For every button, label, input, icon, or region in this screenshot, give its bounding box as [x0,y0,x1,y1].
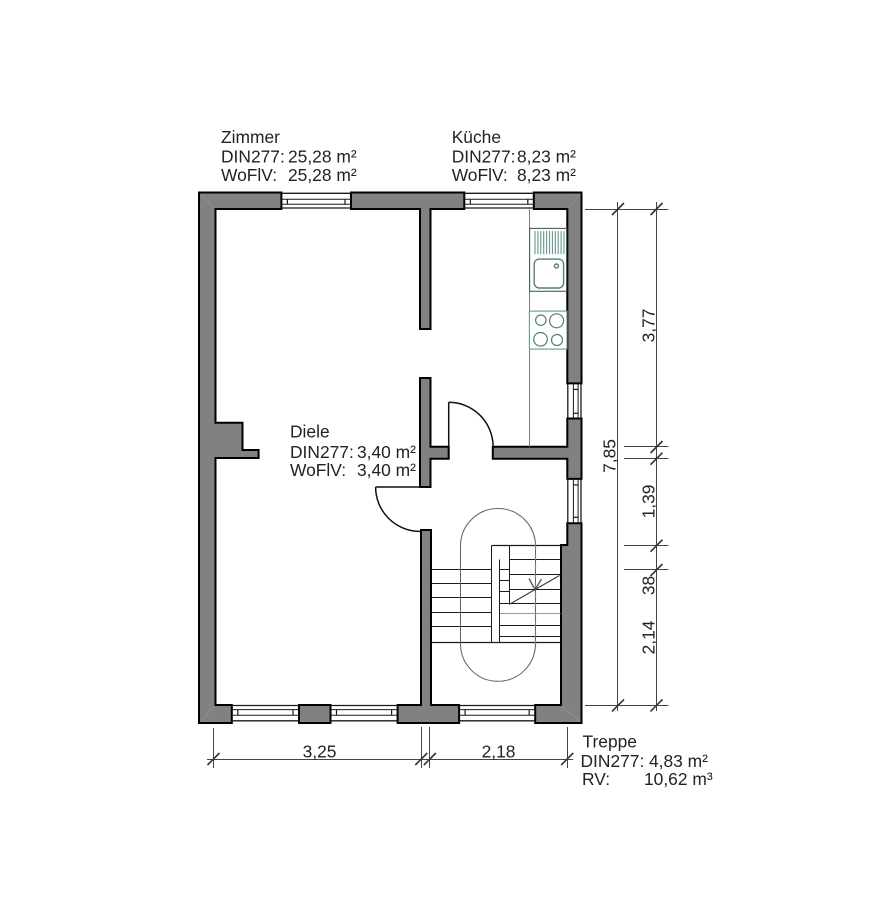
svg-text:WoFlV:: WoFlV: [452,165,508,185]
svg-text:38: 38 [639,576,659,595]
svg-text:1,39: 1,39 [639,485,659,519]
svg-text:DIN277:: DIN277: [452,147,516,167]
svg-text:3,40 m²: 3,40 m² [357,460,416,480]
svg-text:3,40 m²: 3,40 m² [357,442,416,462]
svg-text:RV:: RV: [582,769,610,789]
svg-text:Küche: Küche [452,127,501,147]
svg-text:3,25: 3,25 [303,742,337,762]
svg-text:2,18: 2,18 [482,742,516,762]
svg-text:25,28 m²: 25,28 m² [288,147,357,167]
svg-text:3,77: 3,77 [639,309,659,343]
svg-text:WoFlV:: WoFlV: [290,460,346,480]
svg-text:WoFlV:: WoFlV: [221,165,277,185]
svg-text:DIN277:: DIN277: [290,442,354,462]
svg-text:8,23 m²: 8,23 m² [517,147,576,167]
svg-text:Diele: Diele [290,421,330,441]
svg-text:8,23 m²: 8,23 m² [517,165,576,185]
svg-text:25,28 m²: 25,28 m² [288,165,357,185]
svg-text:10,62 m³: 10,62 m³ [644,769,713,789]
svg-text:Treppe: Treppe [583,731,637,751]
svg-text:2,14: 2,14 [639,620,659,654]
svg-text:Zimmer: Zimmer [221,127,280,147]
svg-text:7,85: 7,85 [600,439,620,473]
svg-text:DIN277:: DIN277: [221,147,285,167]
